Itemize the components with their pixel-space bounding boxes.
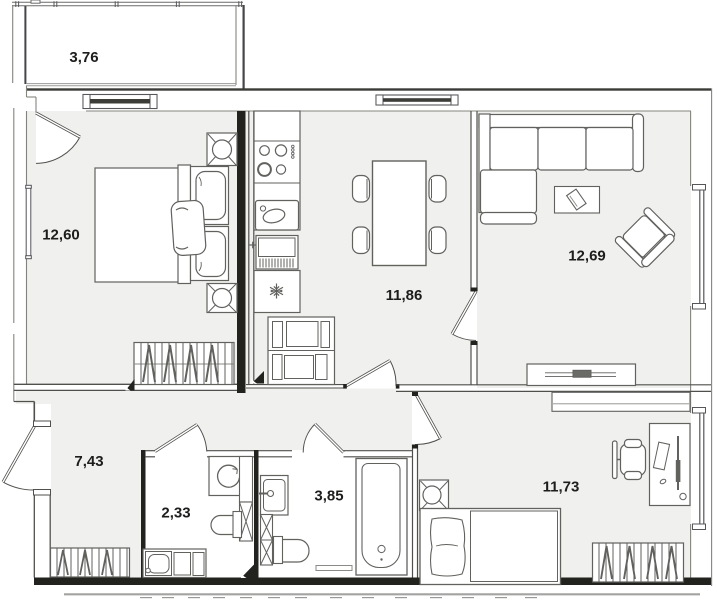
svg-text:11,86: 11,86 xyxy=(386,287,423,304)
svg-text:3,76: 3,76 xyxy=(69,49,98,66)
svg-text:2,33: 2,33 xyxy=(161,505,190,522)
svg-text:12,69: 12,69 xyxy=(568,248,606,265)
svg-text:11,73: 11,73 xyxy=(543,479,580,496)
svg-text:12,60: 12,60 xyxy=(42,227,80,244)
svg-text:3,85: 3,85 xyxy=(314,488,343,505)
svg-text:7,43: 7,43 xyxy=(74,453,103,470)
